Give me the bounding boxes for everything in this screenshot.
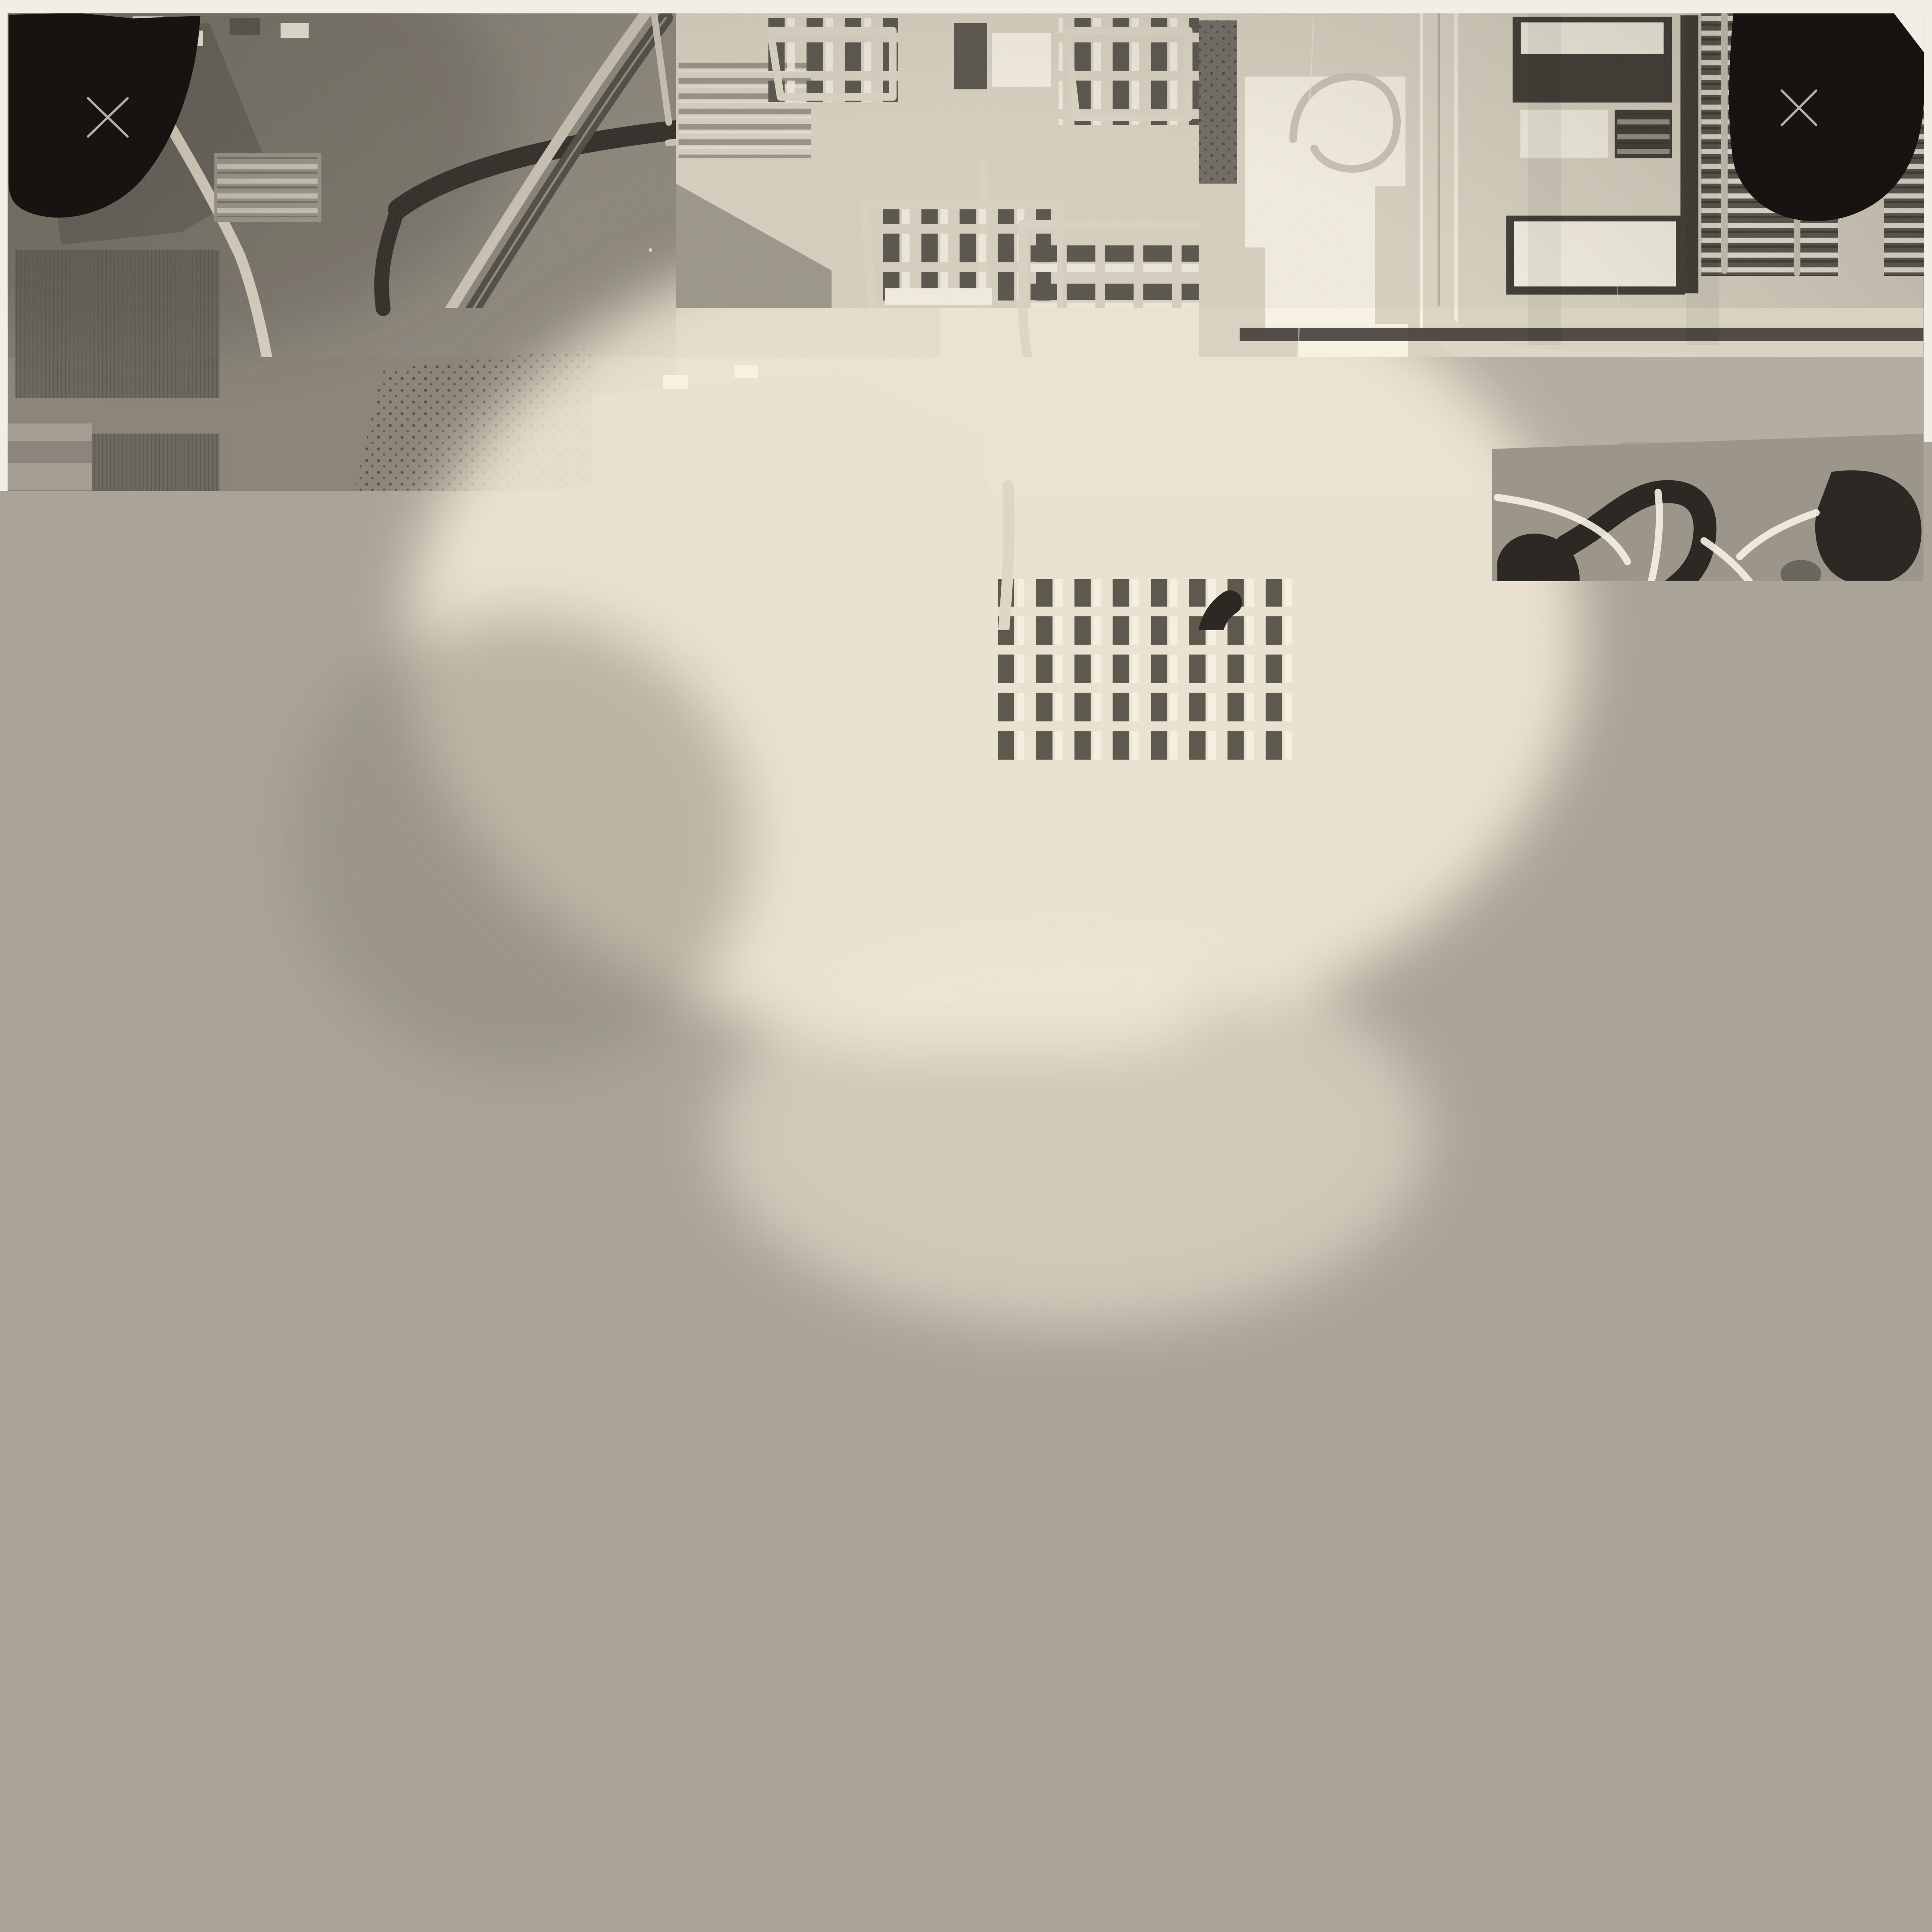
photo-emulsion <box>0 0 1932 1932</box>
vignette <box>8 13 1924 1923</box>
aerial-photograph <box>0 0 1932 1932</box>
aerial-photo-print <box>0 0 1932 1932</box>
